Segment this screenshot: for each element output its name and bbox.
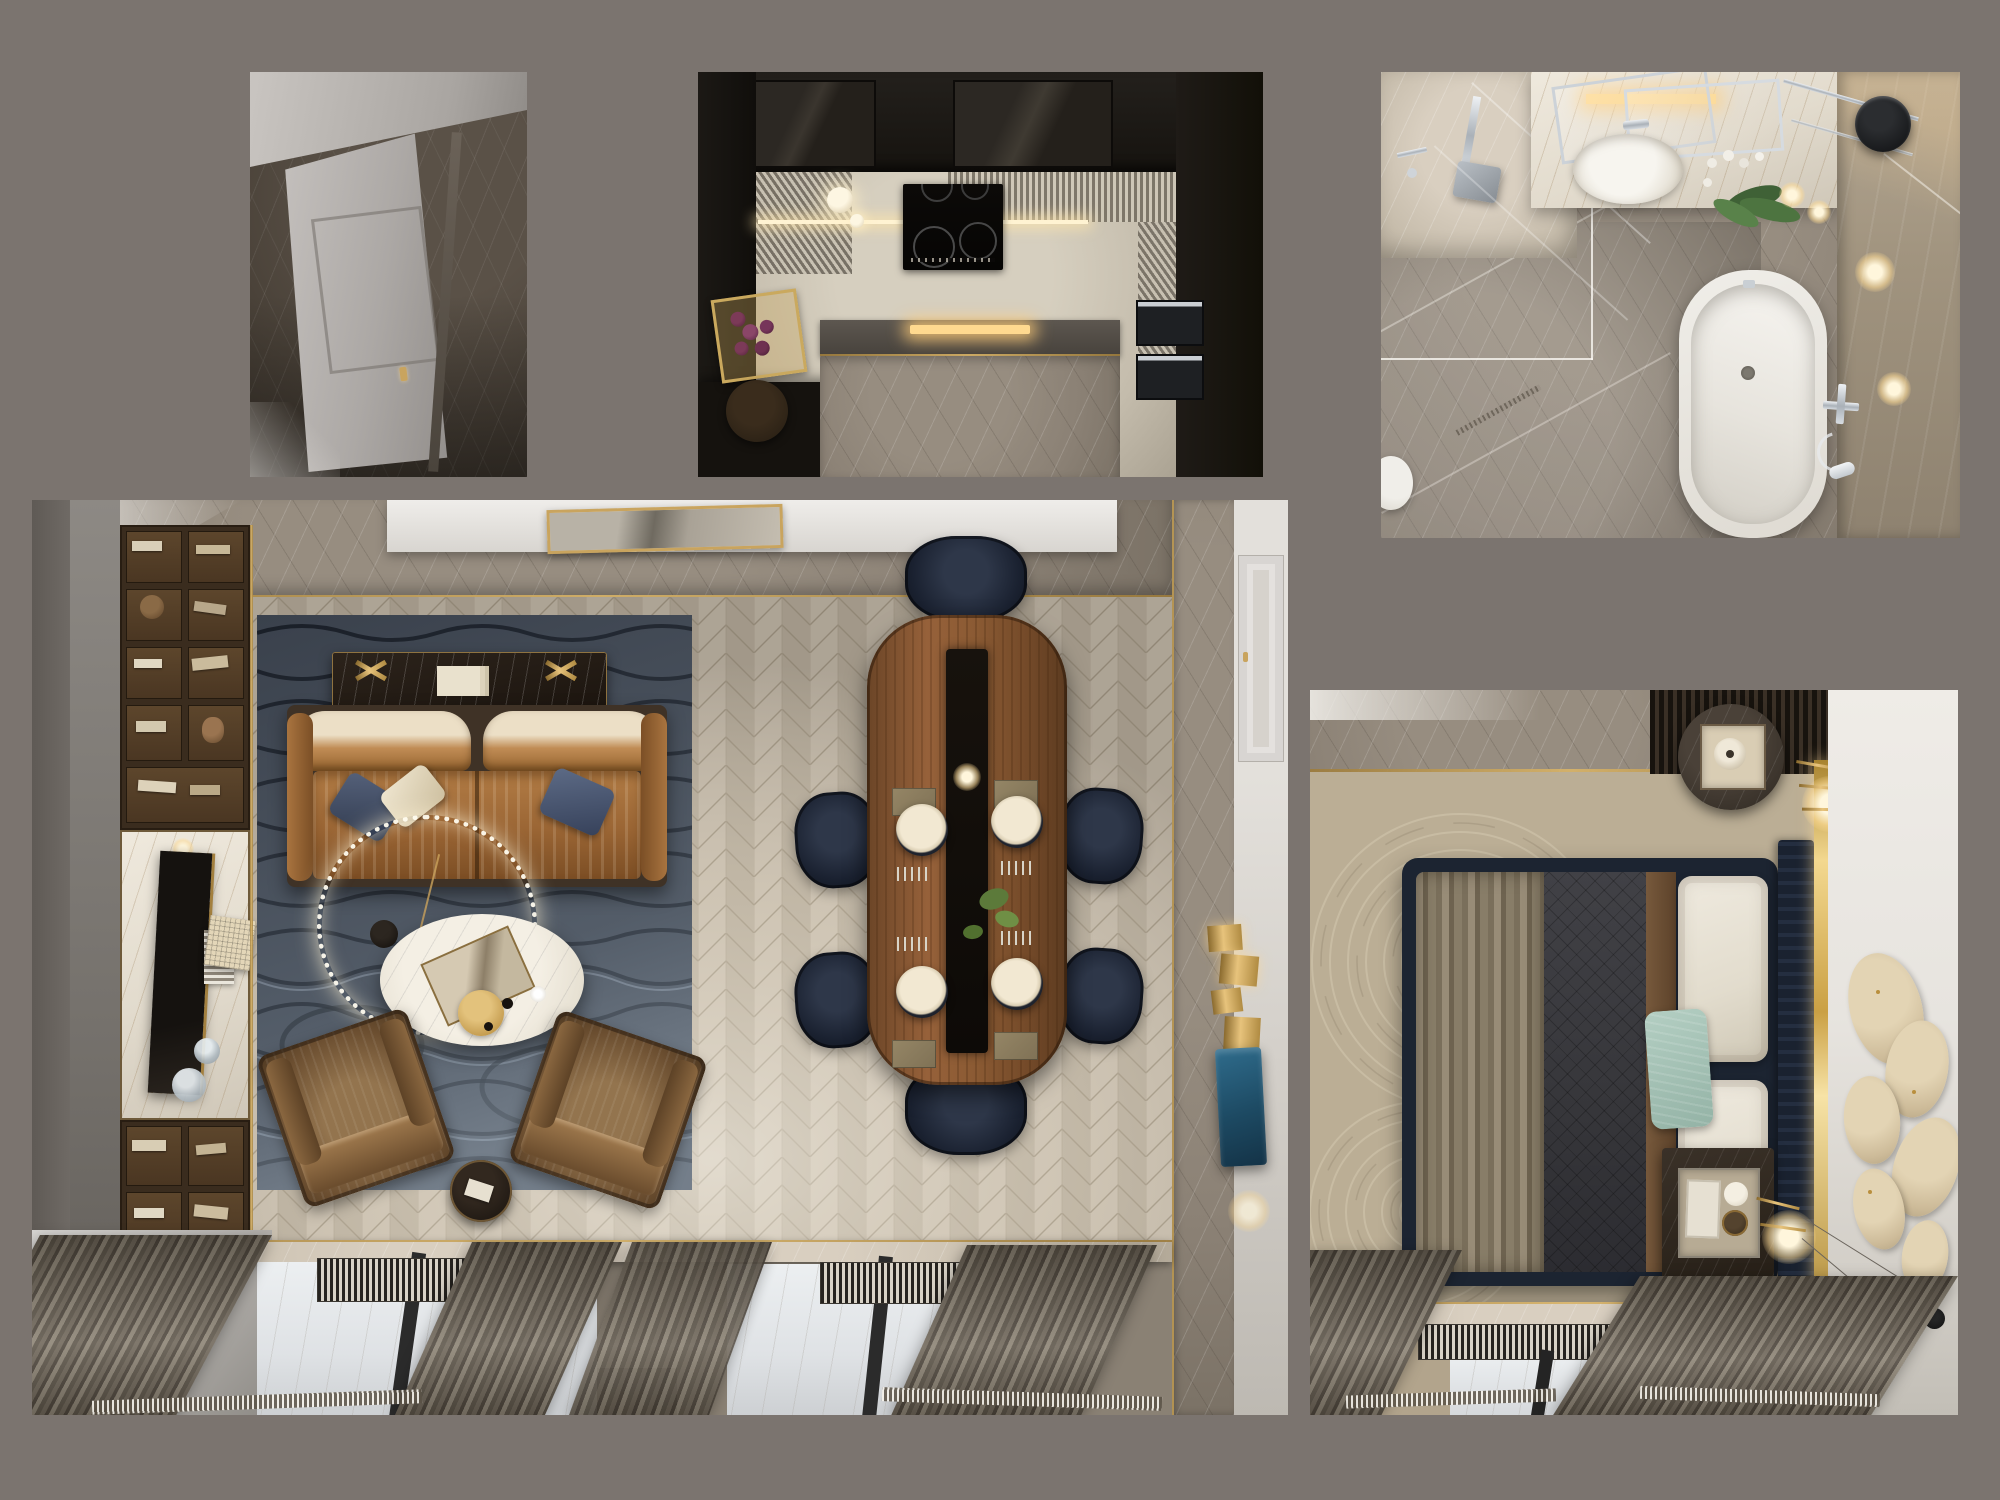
cooktop-controls xyxy=(911,258,995,262)
side-door-handle xyxy=(1243,652,1248,662)
kitchen-wall-ovens xyxy=(1136,300,1204,400)
bedroom-entry-white-streak xyxy=(1310,690,1540,720)
grape-2 xyxy=(747,304,764,321)
nightstand-decor-book xyxy=(1685,1179,1721,1238)
cooktop-zone-4 xyxy=(961,184,989,200)
kitchen-island xyxy=(820,320,1120,477)
kitchen-glass-cabinet-left xyxy=(736,80,876,168)
bed-teal-pillow xyxy=(1644,1008,1714,1130)
cutlery-3 xyxy=(897,937,927,951)
bedroom-nightstand-top xyxy=(1678,704,1784,810)
shelf-round-decor xyxy=(202,717,224,743)
nightstand-cup-white xyxy=(1724,1182,1748,1206)
living-side-door xyxy=(1238,555,1284,762)
orchid-bloom-3 xyxy=(1739,158,1749,168)
orchid-bloom-4 xyxy=(1703,178,1712,187)
right-wall-glow xyxy=(1228,1190,1270,1232)
books xyxy=(136,721,166,732)
living-framed-painting xyxy=(546,504,783,554)
bathtub-drain xyxy=(1741,366,1755,380)
living-bookshelf-upper xyxy=(120,525,250,830)
bedroom-gold-trim-strip xyxy=(1814,760,1828,1320)
bed-charcoal-duvet xyxy=(1544,872,1646,1272)
bath-black-vessel xyxy=(1855,96,1911,152)
books xyxy=(190,785,220,795)
books xyxy=(132,541,162,551)
bath-candle-1 xyxy=(1779,182,1805,208)
console-book-stack xyxy=(437,666,489,696)
leaf-art-gold-dot-2 xyxy=(1912,1090,1916,1094)
hall-light-streak xyxy=(250,402,340,477)
living-gold-wall-art xyxy=(1208,925,1260,1055)
bathtub xyxy=(1679,270,1827,538)
shelf-cell xyxy=(188,647,244,699)
shelf-cell xyxy=(126,647,182,699)
dining-chair-head xyxy=(905,536,1027,622)
grape-4 xyxy=(759,319,775,335)
placemat-4 xyxy=(994,1032,1038,1060)
shelf-cell xyxy=(188,589,244,641)
bath-candle-2 xyxy=(1807,200,1831,224)
placemat-3 xyxy=(892,1040,936,1068)
panel-bedroom xyxy=(1310,690,1958,1415)
gold-art-piece-2 xyxy=(1219,953,1259,986)
cooktop-zone-2 xyxy=(959,222,997,260)
glass-decanter-2 xyxy=(172,1068,206,1102)
bedroom-lamp-glow-bottom xyxy=(1762,1210,1816,1264)
render-collage-canvas xyxy=(0,0,2000,1500)
panel-living-dining xyxy=(32,500,1288,1415)
grape-1 xyxy=(729,311,746,328)
place-setting-3 xyxy=(896,966,948,1018)
bed-taupe-throw xyxy=(1416,872,1544,1272)
mirror-wall-light-1 xyxy=(1855,252,1895,292)
living-media-niche-marble xyxy=(120,830,250,1120)
cutlery-2 xyxy=(1001,861,1031,875)
living-console-table xyxy=(332,652,607,710)
orchid-bloom-1 xyxy=(1707,158,1717,168)
bathtub-interior xyxy=(1691,284,1815,524)
coffee-table-crystal xyxy=(530,986,546,1002)
kitchen-induction-cooktop xyxy=(903,184,1003,270)
dining-greenery-2 xyxy=(993,908,1020,930)
grape-6 xyxy=(754,340,771,357)
cutlery-4 xyxy=(1001,931,1031,945)
kitchen-cabinet-column-right xyxy=(1176,72,1263,477)
shelf-cell xyxy=(126,1126,182,1186)
sofa-back-cushion-right xyxy=(483,711,659,771)
shower-valve-bar xyxy=(1397,147,1427,158)
books xyxy=(134,659,162,668)
shower-arm xyxy=(1461,96,1481,168)
kitchen-pendant-light-small xyxy=(850,214,864,228)
books xyxy=(132,1140,166,1151)
sofa-armrest-left xyxy=(287,713,313,881)
shelf-cell xyxy=(126,705,182,761)
coffee-table-gold-tray xyxy=(458,990,504,1036)
kitchen-dark-platter xyxy=(726,380,788,442)
oven-upper xyxy=(1136,300,1204,346)
coffee-table-black-dot-1 xyxy=(502,998,513,1009)
glass-decanter-1 xyxy=(194,1038,220,1064)
books xyxy=(196,545,230,554)
grape-3 xyxy=(741,323,759,341)
books xyxy=(134,1208,164,1218)
orchid-bloom-2 xyxy=(1723,150,1734,161)
leaf-art-gold-dot-3 xyxy=(1868,1190,1872,1194)
shelf-cell xyxy=(126,531,182,583)
grape-5 xyxy=(734,341,750,357)
island-lit-niche xyxy=(910,325,1030,334)
bathtub-overflow xyxy=(1743,280,1755,288)
place-setting-2 xyxy=(991,796,1043,848)
dining-candle xyxy=(953,763,981,791)
panel-entry-hall xyxy=(250,72,527,477)
place-setting-4 xyxy=(991,958,1043,1010)
mirror-wall-light-2 xyxy=(1877,372,1911,406)
kitchen-fruit-tray xyxy=(711,288,808,383)
mirror-wall-seam xyxy=(1883,153,1960,253)
place-setting-1 xyxy=(896,804,948,856)
chandelier-black-disc xyxy=(370,920,398,948)
side-table-book xyxy=(464,1178,494,1202)
cooktop-zone-3 xyxy=(921,184,953,202)
gold-art-piece-1 xyxy=(1207,924,1243,952)
nightstand-lamp-center xyxy=(1726,750,1734,758)
sofa-armrest-right xyxy=(641,713,667,881)
panel-bathroom xyxy=(1381,72,1960,538)
nightstand-cup-dark xyxy=(1722,1210,1748,1236)
kitchen-pendant-light-large xyxy=(827,187,853,213)
gold-art-piece-3 xyxy=(1211,987,1244,1014)
dining-table-runner xyxy=(946,649,988,1053)
shelf-cell xyxy=(188,1126,244,1186)
shower-glass-edge-horizontal xyxy=(1381,358,1593,360)
shelf-cell xyxy=(126,767,244,823)
shelf-round-decor xyxy=(140,595,164,619)
oven-lower xyxy=(1136,354,1204,400)
vanity-basin xyxy=(1573,134,1683,204)
shower-valve-knob xyxy=(1407,168,1417,178)
kitchen-glass-cabinet-right xyxy=(953,80,1113,168)
living-teal-wall-art xyxy=(1215,1047,1267,1167)
dining-table xyxy=(867,615,1067,1085)
coffee-table-black-dot-2 xyxy=(484,1022,493,1031)
sofa-back-cushion-left xyxy=(295,711,471,771)
woven-cream-box xyxy=(204,915,257,971)
shelf-cell xyxy=(188,531,244,583)
orchid-bloom-5 xyxy=(1755,152,1764,161)
island-gold-edge xyxy=(820,354,1120,356)
cutlery-1 xyxy=(897,867,927,881)
island-marble-top xyxy=(820,356,1120,477)
living-right-gold-trim xyxy=(1172,500,1174,1415)
leaf-art-gold-dot-1 xyxy=(1876,990,1880,994)
living-side-table xyxy=(450,1160,512,1222)
hall-door-panel-inset xyxy=(311,206,440,374)
panel-kitchen xyxy=(698,72,1263,477)
